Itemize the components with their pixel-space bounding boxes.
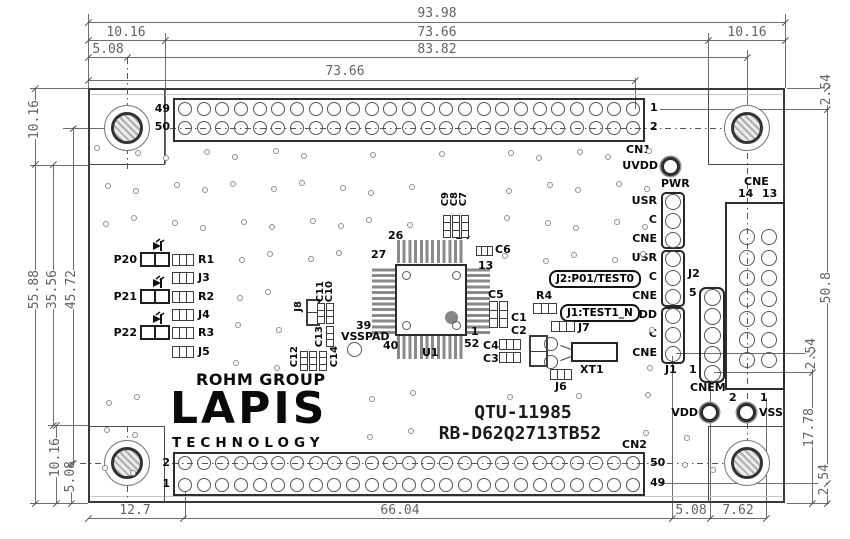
cap-c11 — [317, 303, 325, 324]
cne-col14-label: 14 — [738, 188, 753, 200]
resistor-r2 — [172, 291, 194, 303]
cn1-pin-hole — [477, 121, 491, 135]
mounting-hole-drill — [111, 112, 143, 144]
cn2-pin-hole — [234, 478, 248, 492]
mounting-hole-drill — [111, 447, 143, 479]
dim-35-56: 35.56 — [46, 270, 60, 309]
cn1-pin-hole — [514, 121, 528, 135]
via — [647, 365, 653, 371]
port-p21-label: P21 — [114, 291, 137, 303]
callout-j2-test0: J2:P01/TEST0 — [549, 270, 641, 288]
header-pin-label: CNE — [632, 347, 657, 359]
cnem-pin-hole — [704, 289, 721, 306]
uvdd-pad — [661, 157, 680, 176]
via — [239, 257, 245, 263]
cn2-pin-hole — [253, 478, 267, 492]
cn1-pin-hole — [290, 121, 304, 135]
cn2-pin-hole — [477, 456, 491, 470]
dim-10-16-bl: 10.16 — [49, 438, 63, 477]
via — [163, 155, 169, 161]
via — [366, 217, 372, 223]
j5-label: J5 — [198, 346, 210, 358]
cne-pin-hole — [761, 352, 777, 368]
dim-line — [88, 518, 766, 519]
cn1-pin-hole — [253, 121, 267, 135]
header-pin-hole — [665, 232, 681, 248]
via — [504, 215, 510, 221]
cn2-pin-hole — [290, 456, 304, 470]
via — [336, 250, 342, 256]
cne-pin-hole — [739, 332, 755, 348]
mounting-hole-drill — [731, 447, 763, 479]
c2-label: C2 — [511, 325, 527, 337]
cn1-pin-hole — [458, 102, 472, 116]
j4-label: J4 — [198, 309, 210, 321]
cn1-pin-hole — [458, 121, 472, 135]
cn2-pin-hole — [589, 456, 603, 470]
via — [645, 392, 651, 398]
dim-5-08: 5.08 — [92, 42, 123, 57]
via — [174, 182, 180, 188]
cn1-pin-hole — [290, 102, 304, 116]
cn1-pin-hole — [533, 102, 547, 116]
cap-c5 — [489, 301, 498, 328]
jumper-j4 — [172, 309, 194, 321]
ic-pin52-label: 52 — [464, 338, 479, 350]
cnem-pin5-label: 5 — [689, 287, 697, 299]
j6-label: J6 — [555, 381, 567, 393]
cn1-pin-hole — [421, 102, 435, 116]
resistor-r4 — [533, 303, 557, 314]
qfp-corner-mark — [402, 271, 411, 280]
cap — [309, 351, 317, 371]
dim-93-98: 93.98 — [417, 6, 456, 21]
xt1-pad — [544, 337, 558, 351]
dim-66-04: 66.04 — [380, 503, 419, 518]
technology-text: TECHNOLOGY — [172, 436, 325, 451]
r2-label: R2 — [198, 291, 214, 303]
header-pin-hole — [665, 346, 681, 362]
led-diode-icon — [148, 275, 168, 288]
ic-u1-label: U1 — [422, 347, 439, 359]
cne-pin-hole — [761, 229, 777, 245]
cn2-pin2-label: 2 — [162, 457, 170, 469]
via — [265, 289, 271, 295]
cn2-pin-hole — [458, 456, 472, 470]
cn2-pin-hole — [178, 478, 192, 492]
vss-pin-number: 1 — [760, 392, 768, 404]
via — [104, 427, 110, 433]
cn1-pin50-label: 50 — [155, 121, 170, 133]
cn2-label: CN2 — [622, 439, 647, 451]
via — [575, 187, 581, 193]
cn2-pin-hole — [589, 478, 603, 492]
c7-label: C7 — [459, 192, 468, 206]
header-pin-hole — [665, 308, 681, 324]
xt1-label: XT1 — [580, 364, 604, 376]
via — [507, 394, 513, 400]
cn1-pin-hole — [197, 102, 211, 116]
via — [407, 222, 413, 228]
via — [506, 188, 512, 194]
cn1-pin-hole — [570, 102, 584, 116]
cn2-pin-hole — [514, 456, 528, 470]
dim-5-08-b: 5.08 — [675, 503, 706, 518]
via — [241, 219, 247, 225]
cne-pin-hole — [761, 250, 777, 266]
qfp-corner-mark — [452, 321, 461, 330]
header-pin-label: C — [649, 271, 657, 283]
cap — [499, 301, 508, 328]
cnem-pin-hole — [704, 346, 721, 363]
pwr-label: PWR — [661, 178, 690, 190]
cn2-pin-hole — [253, 456, 267, 470]
cn1-pin-hole — [421, 121, 435, 135]
via — [235, 322, 241, 328]
mounting-hole-drill — [731, 112, 763, 144]
c10-label: C10 — [325, 281, 334, 302]
via — [605, 154, 611, 160]
cn2-pin-hole — [570, 478, 584, 492]
ext-line — [30, 88, 88, 89]
cn2-pin-hole — [309, 478, 323, 492]
ic-pin13-label: 13 — [478, 260, 493, 272]
via — [233, 360, 239, 366]
cn2-pin-hole — [178, 456, 192, 470]
vsspad-pad — [347, 342, 362, 357]
cn2-pin-hole — [570, 456, 584, 470]
cne-pin-hole — [739, 250, 755, 266]
qfp-corner-mark — [452, 271, 461, 280]
cn2-pin-hole — [290, 478, 304, 492]
jumper-j7 — [551, 321, 575, 332]
cn1-pin-hole — [197, 121, 211, 135]
dim-55-88: 55.88 — [28, 270, 42, 309]
cn1-pin-hole — [589, 121, 603, 135]
via — [273, 148, 279, 154]
via — [269, 224, 275, 230]
via — [105, 183, 111, 189]
via — [573, 225, 579, 231]
via — [410, 390, 416, 396]
dim-50-8: 50.8 — [820, 272, 834, 303]
cn1-pin-hole — [402, 102, 416, 116]
cap-c14 — [319, 351, 327, 371]
header-pin-label: C — [649, 214, 657, 226]
cn2-pin-hole — [533, 456, 547, 470]
r3-label: R3 — [198, 327, 214, 339]
via — [204, 149, 210, 155]
via — [271, 186, 277, 192]
vss-label: VSS — [759, 407, 783, 419]
via — [103, 221, 109, 227]
cap-c3 — [499, 352, 521, 363]
cn1-pin-hole — [346, 121, 360, 135]
via — [310, 218, 316, 224]
via — [368, 190, 374, 196]
ic-pin27-label: 27 — [371, 249, 386, 261]
led-component — [140, 325, 170, 340]
dim-10-16-left: 10.16 — [106, 25, 145, 40]
board-edge-line — [91, 94, 782, 95]
cne-pin-hole — [739, 270, 755, 286]
ext-line — [30, 165, 88, 166]
cn1-pin-hole — [253, 102, 267, 116]
r1-label: R1 — [198, 254, 214, 266]
ext-line — [88, 14, 89, 88]
model-number: QTU-11985 — [474, 403, 572, 423]
cn1-pin-hole — [570, 121, 584, 135]
part-number: RB-D62Q2713TB52 — [439, 424, 602, 444]
cap-c9 — [443, 215, 451, 238]
header-pin-label: CNE — [632, 233, 657, 245]
cn1-pin-hole — [346, 102, 360, 116]
via — [616, 181, 622, 187]
cne-col13-label: 13 — [762, 188, 777, 200]
cne-pin-hole — [761, 311, 777, 327]
via — [536, 155, 542, 161]
cn2-pin-hole — [533, 478, 547, 492]
header-pin-hole — [665, 213, 681, 229]
via — [408, 428, 414, 434]
header-pin-hole — [665, 270, 681, 286]
dim-83-82: 83.82 — [417, 42, 456, 57]
qfp-pins-left — [372, 266, 395, 334]
r4-label: R4 — [536, 290, 552, 302]
header-pin-label: USR — [632, 195, 657, 207]
cnem-pin-hole — [704, 308, 721, 325]
j2-label: J2 — [688, 268, 700, 280]
via — [577, 149, 583, 155]
cap-c12 — [300, 351, 308, 371]
cn2-pin-hole — [346, 478, 360, 492]
via — [508, 150, 514, 156]
c4-label: C4 — [483, 340, 499, 352]
via — [134, 394, 140, 400]
cn1-pin-hole — [309, 102, 323, 116]
cne-pin-hole — [739, 311, 755, 327]
via — [409, 184, 415, 190]
jumper-j3 — [172, 272, 194, 284]
cnem-pin-hole — [704, 327, 721, 344]
via — [132, 432, 138, 438]
cn1-pin-hole — [234, 102, 248, 116]
cn2-pin-hole — [197, 478, 211, 492]
cn2-pin49-label: 49 — [650, 477, 665, 489]
via — [299, 180, 305, 186]
via — [642, 224, 648, 230]
cne-pin-hole — [761, 332, 777, 348]
resistor-r1 — [172, 254, 194, 266]
via — [649, 327, 655, 333]
j8-label: J8 — [294, 301, 303, 312]
j7-label: J7 — [578, 322, 590, 334]
c1-label: C1 — [511, 312, 527, 324]
via — [172, 220, 178, 226]
cap-c10 — [326, 303, 334, 324]
cap-c8 — [452, 215, 460, 238]
dim-10-16-right: 10.16 — [727, 25, 766, 40]
cne-pin-hole — [739, 352, 755, 368]
via — [133, 188, 139, 194]
c14-label: C14 — [330, 346, 339, 367]
cn1-pin1-label: 1 — [650, 102, 658, 114]
via — [135, 150, 141, 156]
cn1-pin-hole — [365, 102, 379, 116]
via — [267, 251, 273, 257]
led-component — [140, 252, 170, 267]
via — [338, 223, 344, 229]
via — [202, 187, 208, 193]
ext-line — [785, 14, 786, 88]
ext-line — [30, 503, 88, 504]
cn2-pin-hole — [365, 456, 379, 470]
cn1-pin-hole — [514, 102, 528, 116]
j1-label: J1 — [665, 364, 677, 376]
dim-73-66-inner: 73.66 — [325, 64, 364, 79]
cn1-pin-hole — [309, 121, 323, 135]
cn2-pin-hole — [477, 478, 491, 492]
cn2-pin-hole — [309, 456, 323, 470]
pcb-drawing-sheet: 49 50 1 2 CN1 2 1 50 49 CN2 CNE 14 13 PW… — [0, 0, 850, 539]
cn1-pin-hole — [234, 121, 248, 135]
vss-pad — [737, 403, 756, 422]
dim-10-16-tl: 10.16 — [28, 100, 42, 139]
via — [439, 151, 445, 157]
cn2-pin-hole — [626, 478, 640, 492]
cn2-pin-hole — [421, 478, 435, 492]
cnem-pin1-label: 1 — [689, 364, 697, 376]
via — [106, 400, 112, 406]
cn2-pin-hole — [402, 478, 416, 492]
via — [646, 148, 652, 154]
jumper-j5 — [172, 346, 194, 358]
via — [502, 253, 508, 259]
via — [643, 430, 649, 436]
via — [276, 327, 282, 333]
c13-label: C13 — [315, 326, 324, 347]
via — [644, 186, 650, 192]
cn2-pin-hole — [402, 456, 416, 470]
via — [369, 396, 375, 402]
dim-12-7: 12.7 — [119, 503, 150, 518]
qfp-pins-right — [467, 266, 490, 334]
ext-line — [787, 503, 829, 504]
via — [130, 470, 136, 476]
via — [370, 152, 376, 158]
cn2-pin-hole — [365, 478, 379, 492]
via — [340, 185, 346, 191]
cn2-pin-hole — [458, 478, 472, 492]
j3-label: J3 — [198, 272, 210, 284]
led-diode-icon — [148, 311, 168, 324]
via — [614, 219, 620, 225]
via — [301, 153, 307, 159]
vsspad-label: VSSPAD — [341, 331, 390, 343]
board-edge-line — [91, 496, 782, 497]
callout-j1-test1: J1:TEST1_N — [560, 304, 640, 322]
via — [131, 215, 137, 221]
uvdd-label: UVDD — [622, 160, 658, 172]
via — [543, 258, 549, 264]
cn2-pin-hole — [234, 456, 248, 470]
via — [710, 467, 716, 473]
vdd-label: VDD — [671, 407, 698, 419]
dim-line — [88, 57, 747, 58]
cn1-pin-hole — [178, 102, 192, 116]
cne-pin-hole — [761, 270, 777, 286]
via — [576, 393, 582, 399]
dim-17-78: 17.78 — [803, 408, 817, 447]
via — [94, 145, 100, 151]
header-pin-hole — [665, 251, 681, 267]
cn1-pin-hole — [477, 102, 491, 116]
header-pin-label: CNE — [632, 290, 657, 302]
xt1-pad — [544, 355, 558, 369]
cn1-pin-hole — [365, 121, 379, 135]
cap-c4 — [499, 339, 521, 350]
cne-pin-hole — [739, 291, 755, 307]
header-pin-hole — [665, 327, 681, 343]
cnem-pin-hole — [704, 365, 721, 382]
via — [102, 465, 108, 471]
dim-line — [88, 40, 785, 41]
dim-line — [88, 80, 635, 81]
via — [684, 435, 690, 441]
port-p22-label: P22 — [114, 327, 137, 339]
cn1-pin-hole — [626, 121, 640, 135]
cn2-pin-hole — [197, 456, 211, 470]
cn2-pin-hole — [421, 456, 435, 470]
cnem-label: CNEM — [690, 382, 726, 394]
crystal-xt1-body — [571, 342, 618, 362]
cn1-pin-hole — [533, 121, 547, 135]
cap-c6 — [476, 246, 493, 256]
header-pin-hole — [665, 289, 681, 305]
c5-label: C5 — [488, 289, 504, 301]
via — [367, 434, 373, 440]
via — [237, 295, 243, 301]
jumper-j6 — [550, 369, 572, 380]
qfp-pins-top — [397, 240, 465, 263]
via — [274, 365, 280, 371]
cn1-pin-hole — [402, 121, 416, 135]
dim-45-72: 45.72 — [65, 270, 79, 309]
dim-7-62: 7.62 — [722, 503, 753, 518]
via — [200, 225, 206, 231]
via — [682, 462, 688, 468]
lapis-logo: LAPIS — [170, 387, 327, 431]
cn1-pin2-label: 2 — [650, 121, 658, 133]
via — [571, 252, 577, 258]
port-p20-label: P20 — [114, 254, 137, 266]
cap-c7 — [461, 215, 469, 238]
cap-c13 — [326, 326, 334, 347]
led-diode-icon — [148, 238, 168, 251]
via — [308, 256, 314, 262]
cne-pin-hole — [739, 229, 755, 245]
cn1-pin-hole — [589, 102, 603, 116]
via — [547, 182, 553, 188]
via — [640, 251, 646, 257]
qfp-corner-mark — [402, 321, 411, 330]
via — [545, 220, 551, 226]
cn1-pin49-label: 49 — [155, 103, 170, 115]
cn2-pin50-label: 50 — [650, 457, 665, 469]
cn1-pin-hole — [178, 121, 192, 135]
cn2-pin-hole — [346, 456, 360, 470]
led-component — [140, 289, 170, 304]
